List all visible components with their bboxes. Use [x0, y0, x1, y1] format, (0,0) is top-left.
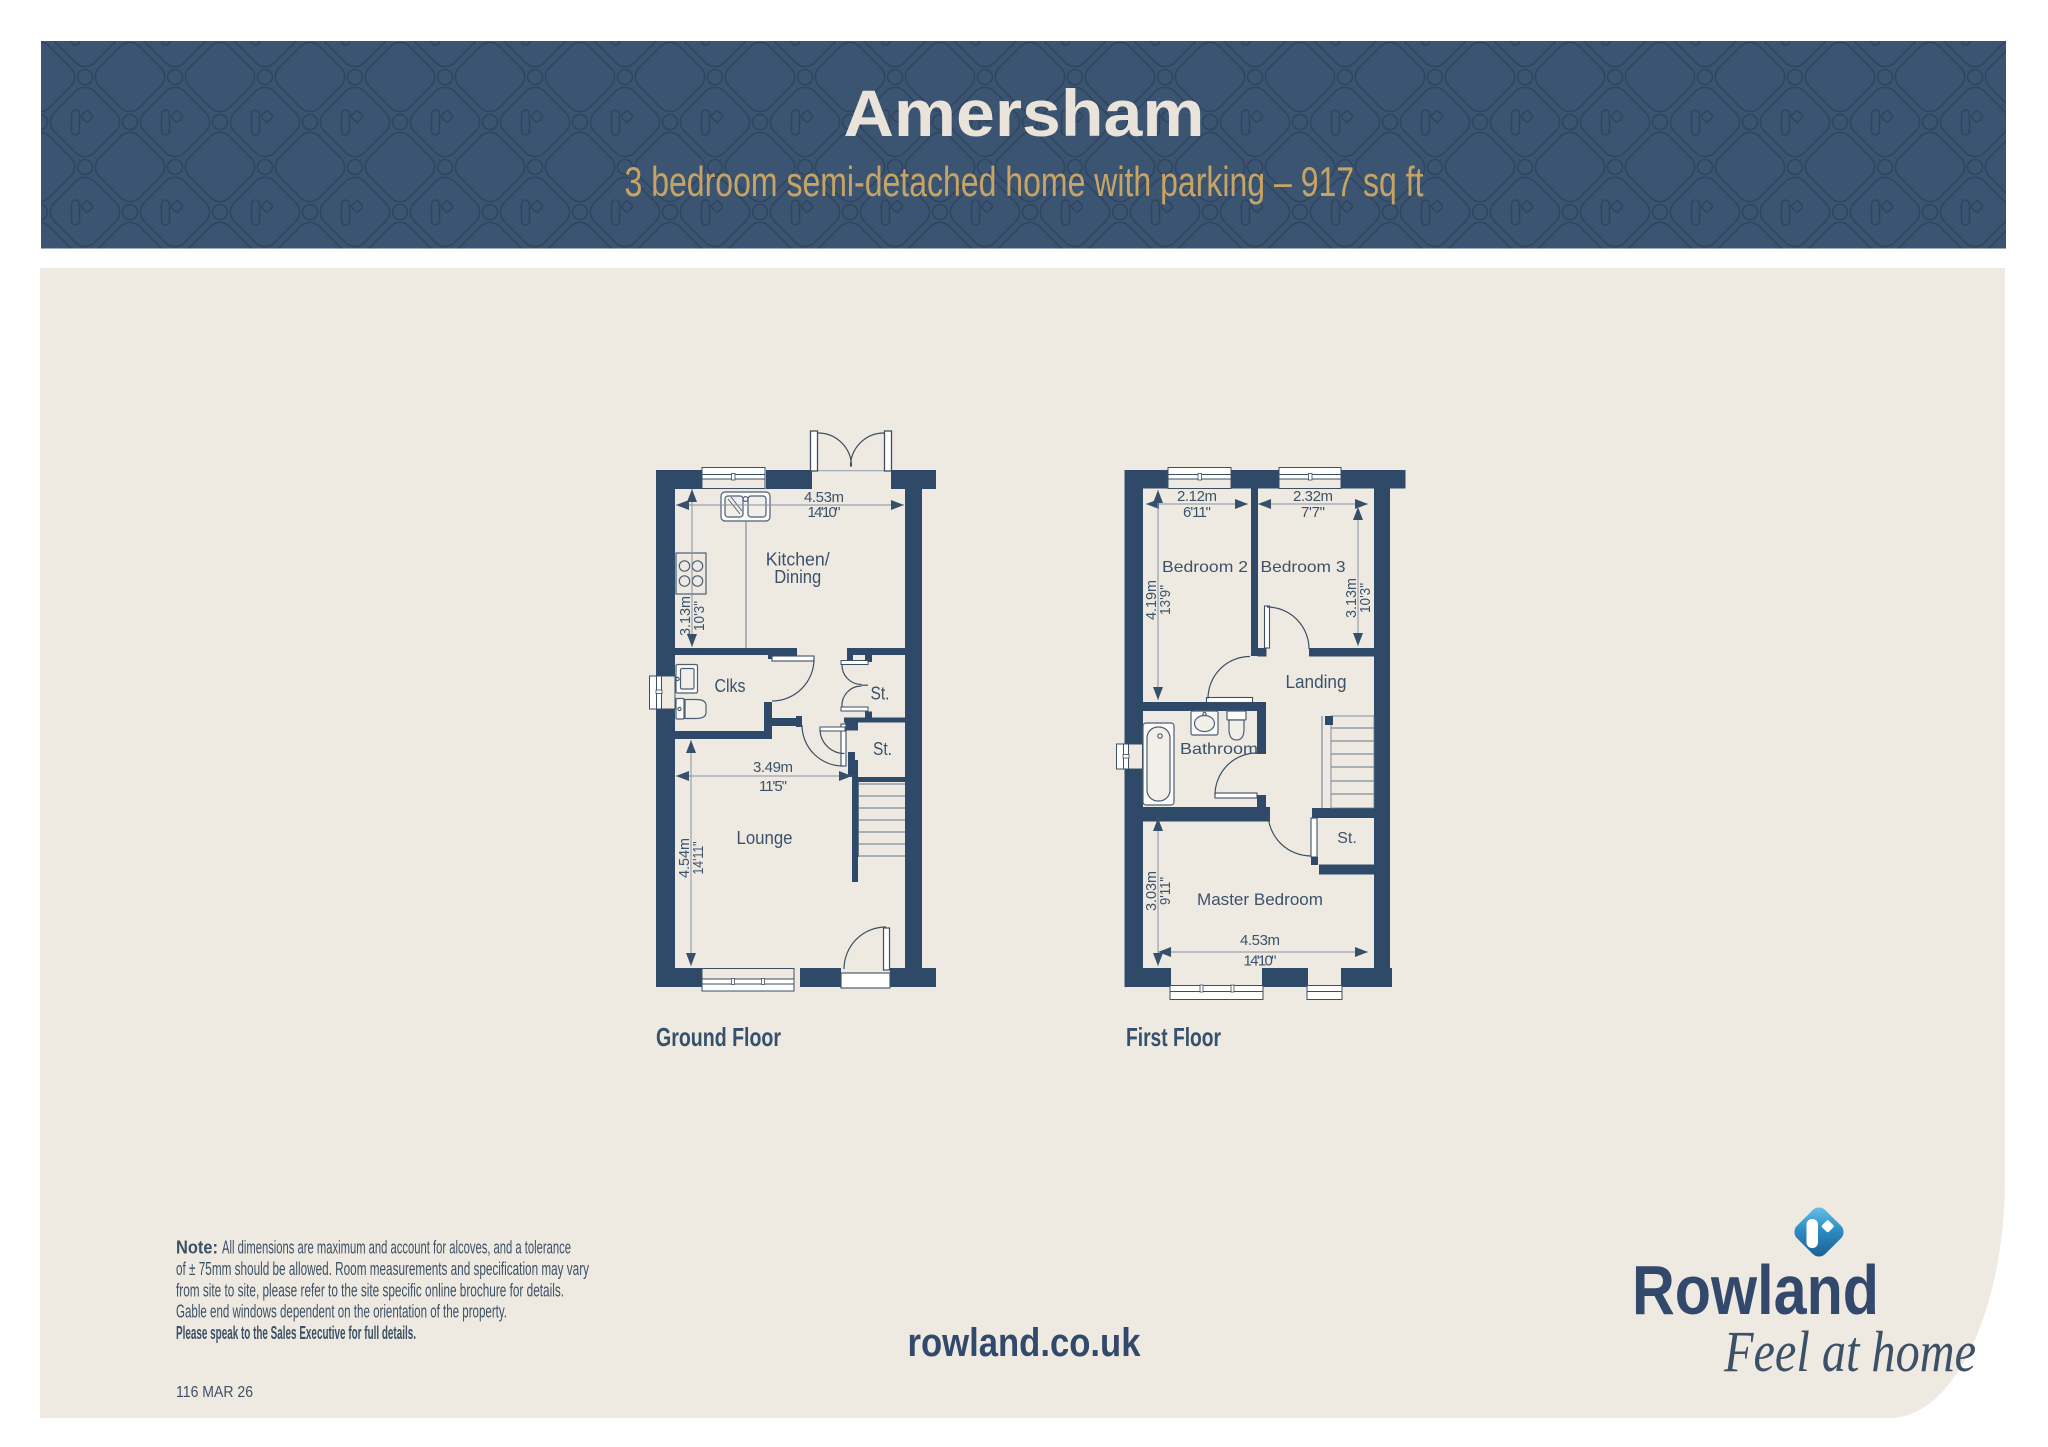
svg-text:Ground Floor: Ground Floor — [656, 1022, 781, 1052]
svg-text:Bedroom 2: Bedroom 2 — [1162, 559, 1248, 576]
svg-text:of ± 75mm should be allowed. R: of ± 75mm should be allowed. Room measur… — [176, 1259, 589, 1279]
svg-text:6'11": 6'11" — [1183, 504, 1211, 521]
svg-text:Please speak to the Sales Exec: Please speak to the Sales Executive for … — [176, 1323, 416, 1343]
svg-text:Bedroom 3: Bedroom 3 — [1261, 559, 1346, 576]
svg-text:Rowland: Rowland — [1632, 1251, 1879, 1329]
svg-text:Gable end windows dependent on: Gable end windows dependent on the orien… — [176, 1302, 507, 1322]
svg-text:9'11": 9'11" — [1157, 877, 1174, 905]
svg-text:All dimensions are maximum and: All dimensions are maximum and account f… — [222, 1238, 571, 1258]
svg-text:Master Bedroom: Master Bedroom — [1197, 890, 1323, 909]
svg-text:rowland.co.uk: rowland.co.uk — [908, 1321, 1142, 1365]
svg-text:10'3": 10'3" — [691, 601, 708, 631]
svg-text:Clks: Clks — [715, 676, 746, 696]
svg-text:St.: St. — [871, 684, 890, 704]
svg-text:Landing: Landing — [1286, 672, 1347, 692]
svg-text:14'11": 14'11" — [690, 842, 707, 875]
svg-text:11'5": 11'5" — [759, 778, 787, 795]
svg-text:7'7": 7'7" — [1301, 504, 1325, 521]
svg-text:First Floor: First Floor — [1126, 1022, 1221, 1052]
svg-text:14'10": 14'10" — [808, 504, 841, 521]
svg-text:3 bedroom semi-detached home w: 3 bedroom semi-detached home with parkin… — [625, 158, 1424, 205]
svg-text:Amersham: Amersham — [844, 76, 1205, 150]
svg-text:Note:: Note: — [176, 1238, 218, 1258]
svg-text:4.53m: 4.53m — [1240, 932, 1280, 949]
svg-text:St.: St. — [1337, 830, 1357, 847]
svg-text:13'9": 13'9" — [1157, 585, 1174, 615]
svg-text:2.12m: 2.12m — [1177, 488, 1217, 505]
svg-text:10'3": 10'3" — [1357, 583, 1374, 613]
svg-text:Dining: Dining — [774, 567, 821, 587]
svg-text:2.32m: 2.32m — [1293, 488, 1333, 505]
svg-text:St.: St. — [873, 739, 892, 759]
svg-text:Lounge: Lounge — [737, 828, 793, 848]
svg-text:116 MAR 26: 116 MAR 26 — [176, 1384, 253, 1401]
svg-text:Feel at home: Feel at home — [1723, 1319, 1976, 1384]
svg-text:Bathroom: Bathroom — [1180, 741, 1258, 758]
svg-text:3.49m: 3.49m — [753, 759, 793, 776]
svg-text:from site to site, please refe: from site to site, please refer to the s… — [176, 1280, 564, 1300]
svg-text:14'10": 14'10" — [1244, 953, 1277, 970]
